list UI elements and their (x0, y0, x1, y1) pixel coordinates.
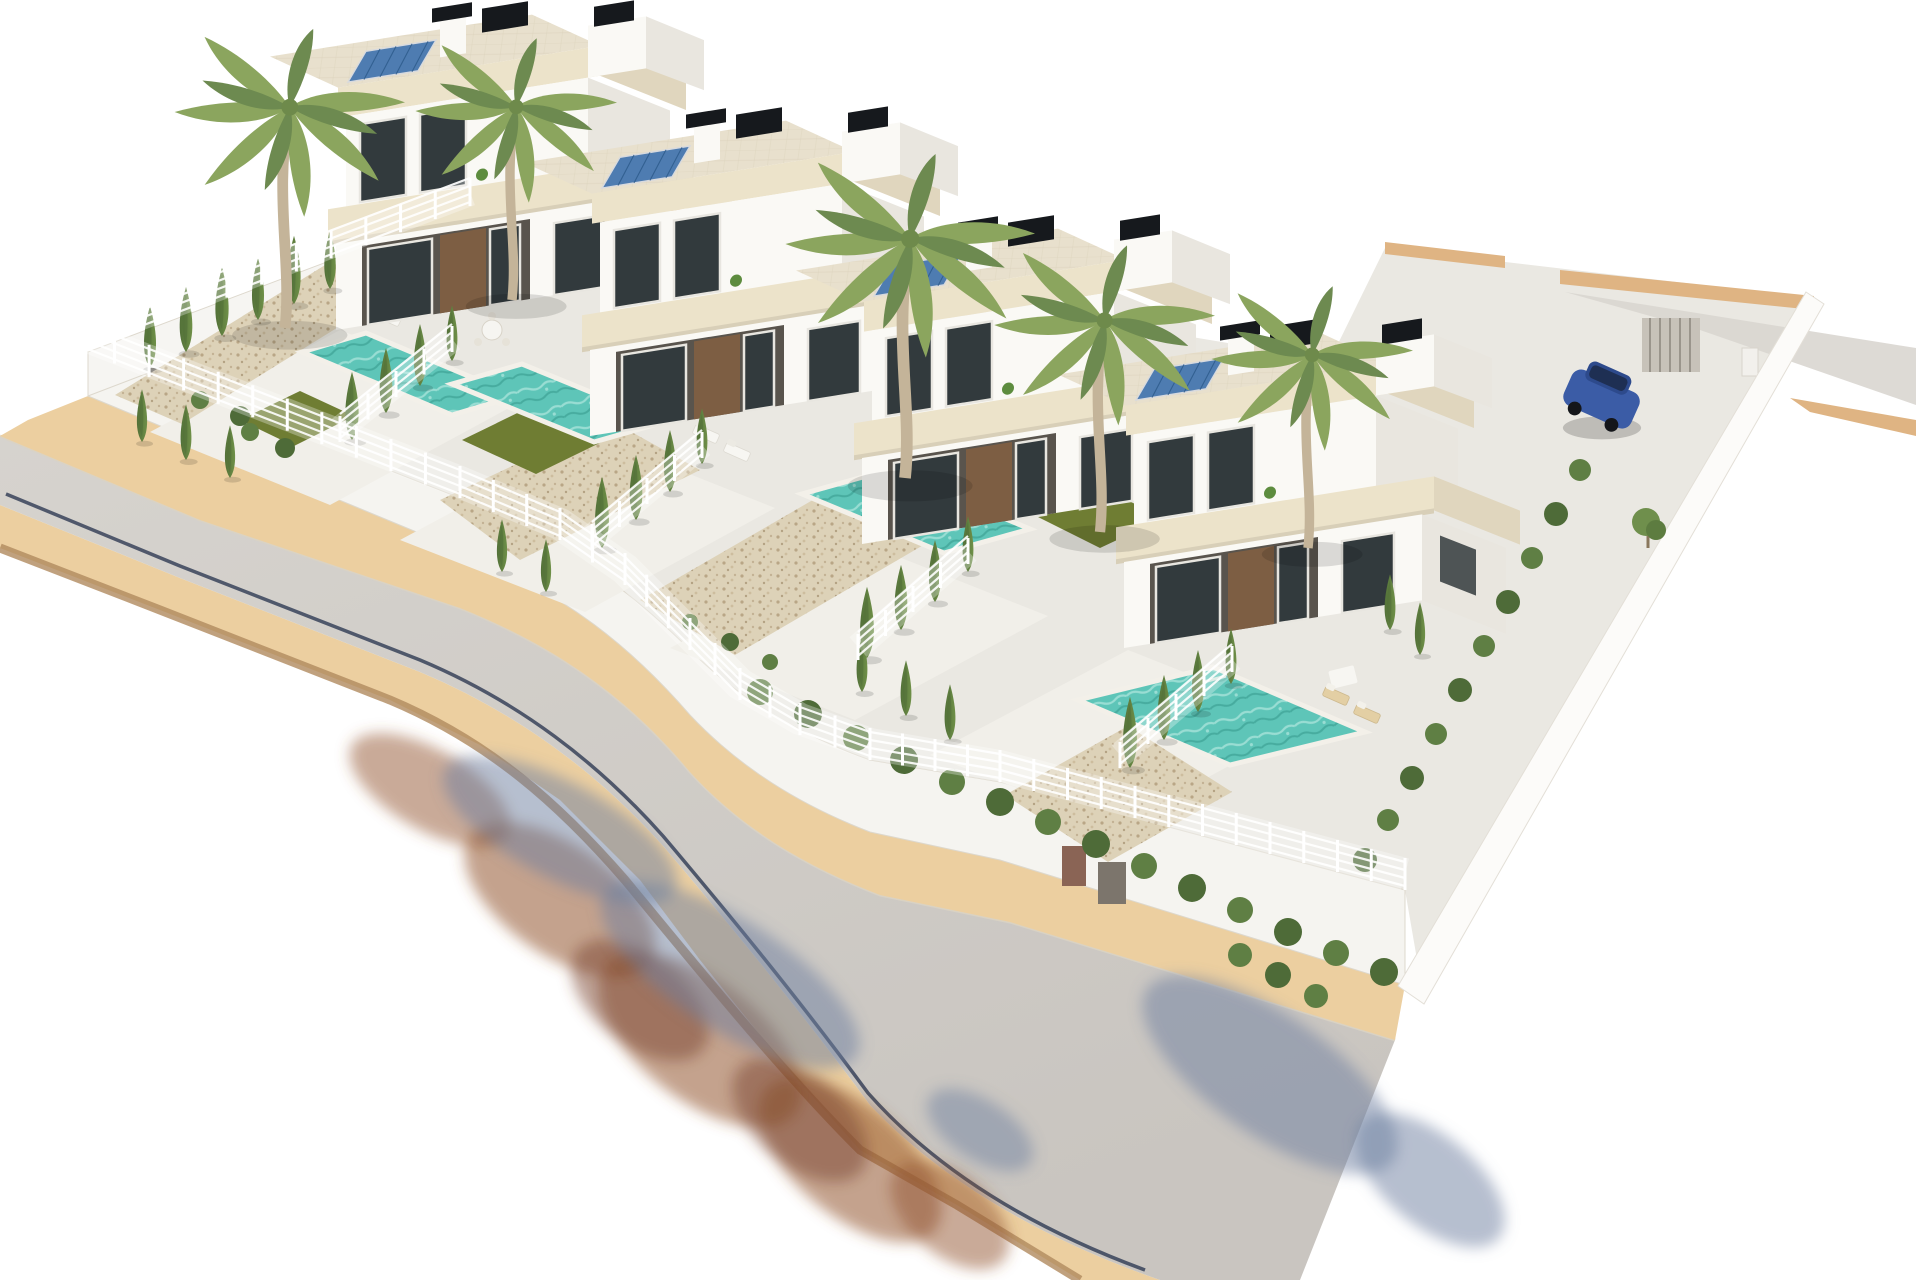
hedge-shrub (1082, 830, 1110, 858)
fence-post (799, 703, 802, 735)
hedge-shrub (1448, 678, 1472, 702)
fence-post (364, 217, 367, 245)
fence-post (251, 385, 254, 417)
fence-post (769, 686, 772, 718)
fence-post (857, 634, 860, 660)
hedge-shrub (1544, 502, 1568, 526)
fence-post (673, 455, 676, 481)
fence-post (451, 326, 454, 352)
fence-post (286, 399, 289, 431)
fence-post (525, 494, 528, 526)
fence-post (714, 643, 717, 675)
fence-post (424, 453, 427, 485)
fence-post (260, 257, 263, 285)
hedge-shrub (1400, 766, 1424, 790)
fence-post (434, 191, 437, 219)
fence-post (645, 575, 648, 607)
hedge-shrub (1425, 723, 1447, 745)
fence-post (646, 478, 649, 504)
hedge-shrub (1496, 590, 1520, 614)
fence-post (966, 745, 969, 777)
fence-post (884, 610, 887, 636)
hedge-shrub (1370, 958, 1398, 986)
hedge-shrub (1227, 897, 1253, 923)
fence-post (320, 412, 323, 444)
hedge-shrub (1521, 547, 1543, 569)
fence-post (901, 734, 904, 766)
fence-post (330, 230, 333, 258)
fence-post (869, 728, 872, 760)
hedge-shrub (1131, 853, 1157, 879)
fence-post (1235, 813, 1238, 845)
hedge-shrub (1178, 874, 1206, 902)
fence-post (121, 309, 124, 337)
fence-post (1167, 795, 1170, 827)
fence-post (217, 372, 220, 404)
fence-post (156, 296, 159, 324)
fence-post (591, 524, 594, 550)
fence-post (934, 739, 937, 771)
fence-post (148, 345, 151, 377)
patio-table-1 (482, 320, 502, 340)
hedge-shrub (1265, 962, 1291, 988)
fence-post (689, 618, 692, 650)
fence-post (559, 508, 562, 540)
fence-post (469, 178, 472, 206)
fence-post (939, 562, 942, 588)
hedge-shrub (1274, 918, 1302, 946)
fence-post (912, 586, 915, 612)
service-gate (1742, 348, 1758, 376)
hedge-shrub (762, 654, 778, 670)
fence-post (1404, 858, 1407, 890)
hedge-shrub (1304, 984, 1328, 1008)
render-canvas (0, 0, 1920, 1280)
fence-post (834, 716, 837, 748)
fence-post (1201, 804, 1204, 836)
hedge-shrub (1377, 809, 1399, 831)
hedge-shrub (275, 438, 295, 458)
fence-post (225, 270, 228, 298)
hedge-shrub (1323, 940, 1349, 966)
fence-post (191, 283, 194, 311)
utility-door-2 (1098, 862, 1126, 904)
hedge-shrub (1228, 943, 1252, 967)
hedge-shrub (1473, 635, 1495, 657)
hedge-shrub (1035, 809, 1061, 835)
fence-post (423, 349, 426, 375)
fence-post (395, 371, 398, 397)
fence-post (399, 204, 402, 232)
fence-post (389, 439, 392, 471)
hedge-shrub (986, 788, 1014, 816)
fence-post (701, 432, 704, 458)
fence-post (1119, 742, 1122, 768)
fence-post (1336, 840, 1339, 872)
fence-post (79, 318, 82, 350)
fence-post (999, 750, 1002, 782)
fence-post (87, 322, 90, 350)
hedge-shrub (1569, 459, 1591, 481)
fence-post (339, 416, 342, 442)
fence-post (624, 553, 627, 585)
fence-post (1302, 831, 1305, 863)
back-street-cap-2 (1790, 398, 1916, 436)
fence-post (367, 394, 370, 420)
fence-post (295, 243, 298, 271)
fence-post (1175, 694, 1178, 720)
patio-chair (474, 338, 482, 346)
fence-post (667, 596, 670, 628)
utility-door-1 (1062, 846, 1086, 886)
fence-post (1147, 718, 1150, 744)
fence-post (1032, 759, 1035, 791)
fence-post (618, 501, 621, 527)
hedge-shrub (241, 423, 259, 441)
fence-post (967, 538, 970, 564)
fence-post (1370, 849, 1373, 881)
fence-post (459, 466, 462, 498)
patio-chair (502, 338, 510, 346)
fence-post (1100, 777, 1103, 809)
fence-post (739, 668, 742, 700)
fence-post (492, 480, 495, 512)
fence-post (1134, 786, 1137, 818)
fence-post (1066, 768, 1069, 800)
architectural-render (0, 0, 1920, 1280)
fence-post (1269, 822, 1272, 854)
fence-post (182, 358, 185, 390)
fence-post (1231, 646, 1234, 672)
fence-post (1203, 670, 1206, 696)
